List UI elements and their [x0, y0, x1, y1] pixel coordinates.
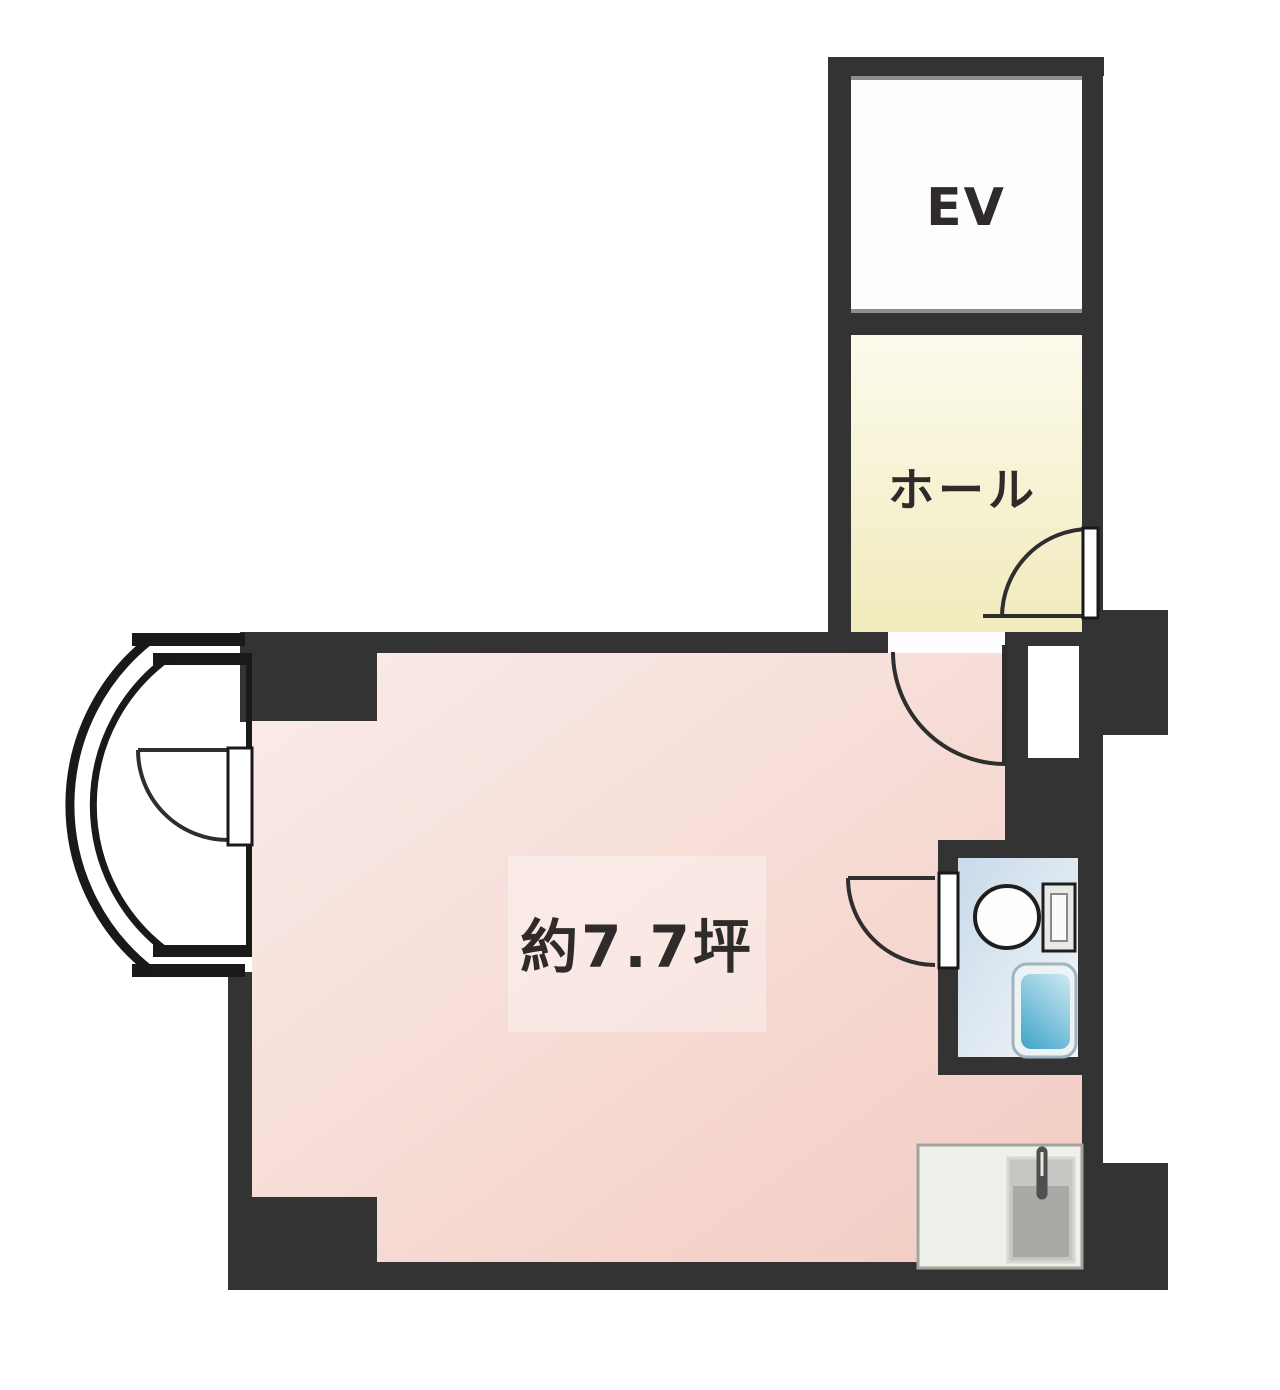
basin-bowl-icon — [1021, 974, 1070, 1049]
hall-door-threshold — [983, 614, 1085, 618]
wall-ev-hall-divider — [851, 313, 1082, 336]
entrance-door-leaf — [228, 748, 252, 845]
pipe-space-cutout — [1028, 646, 1079, 758]
toilet-door-leaf — [939, 873, 958, 968]
wall-wing-bottom — [1100, 1163, 1168, 1290]
wall-ev-column-left — [828, 57, 851, 635]
ev-label: EV — [926, 178, 1006, 238]
entrance-door-line — [138, 748, 228, 752]
entry-door-leaf — [1002, 645, 1007, 764]
ev-edge-top — [851, 76, 1082, 80]
hall-room-opening — [888, 632, 1005, 653]
wall-left-lower — [228, 972, 252, 1290]
toilet-bowl-icon — [975, 886, 1039, 948]
hall-label: ホール — [888, 463, 1038, 517]
wall-room-top-thin — [377, 632, 888, 653]
wall-room-top-thick — [240, 632, 377, 722]
floor-plan: EV ホール 約7.7坪 — [0, 0, 1280, 1390]
wall-ev-column-top — [828, 57, 1104, 76]
wall-wing-top — [1103, 610, 1168, 735]
ev-edge-bottom — [851, 309, 1082, 313]
toilet-tank-lid — [1051, 894, 1067, 941]
toilet-door-line — [848, 876, 935, 880]
area-label: 約7.7坪 — [520, 913, 754, 981]
wall-right-strip — [1082, 840, 1103, 1290]
hall-door-leaf — [1083, 528, 1098, 618]
